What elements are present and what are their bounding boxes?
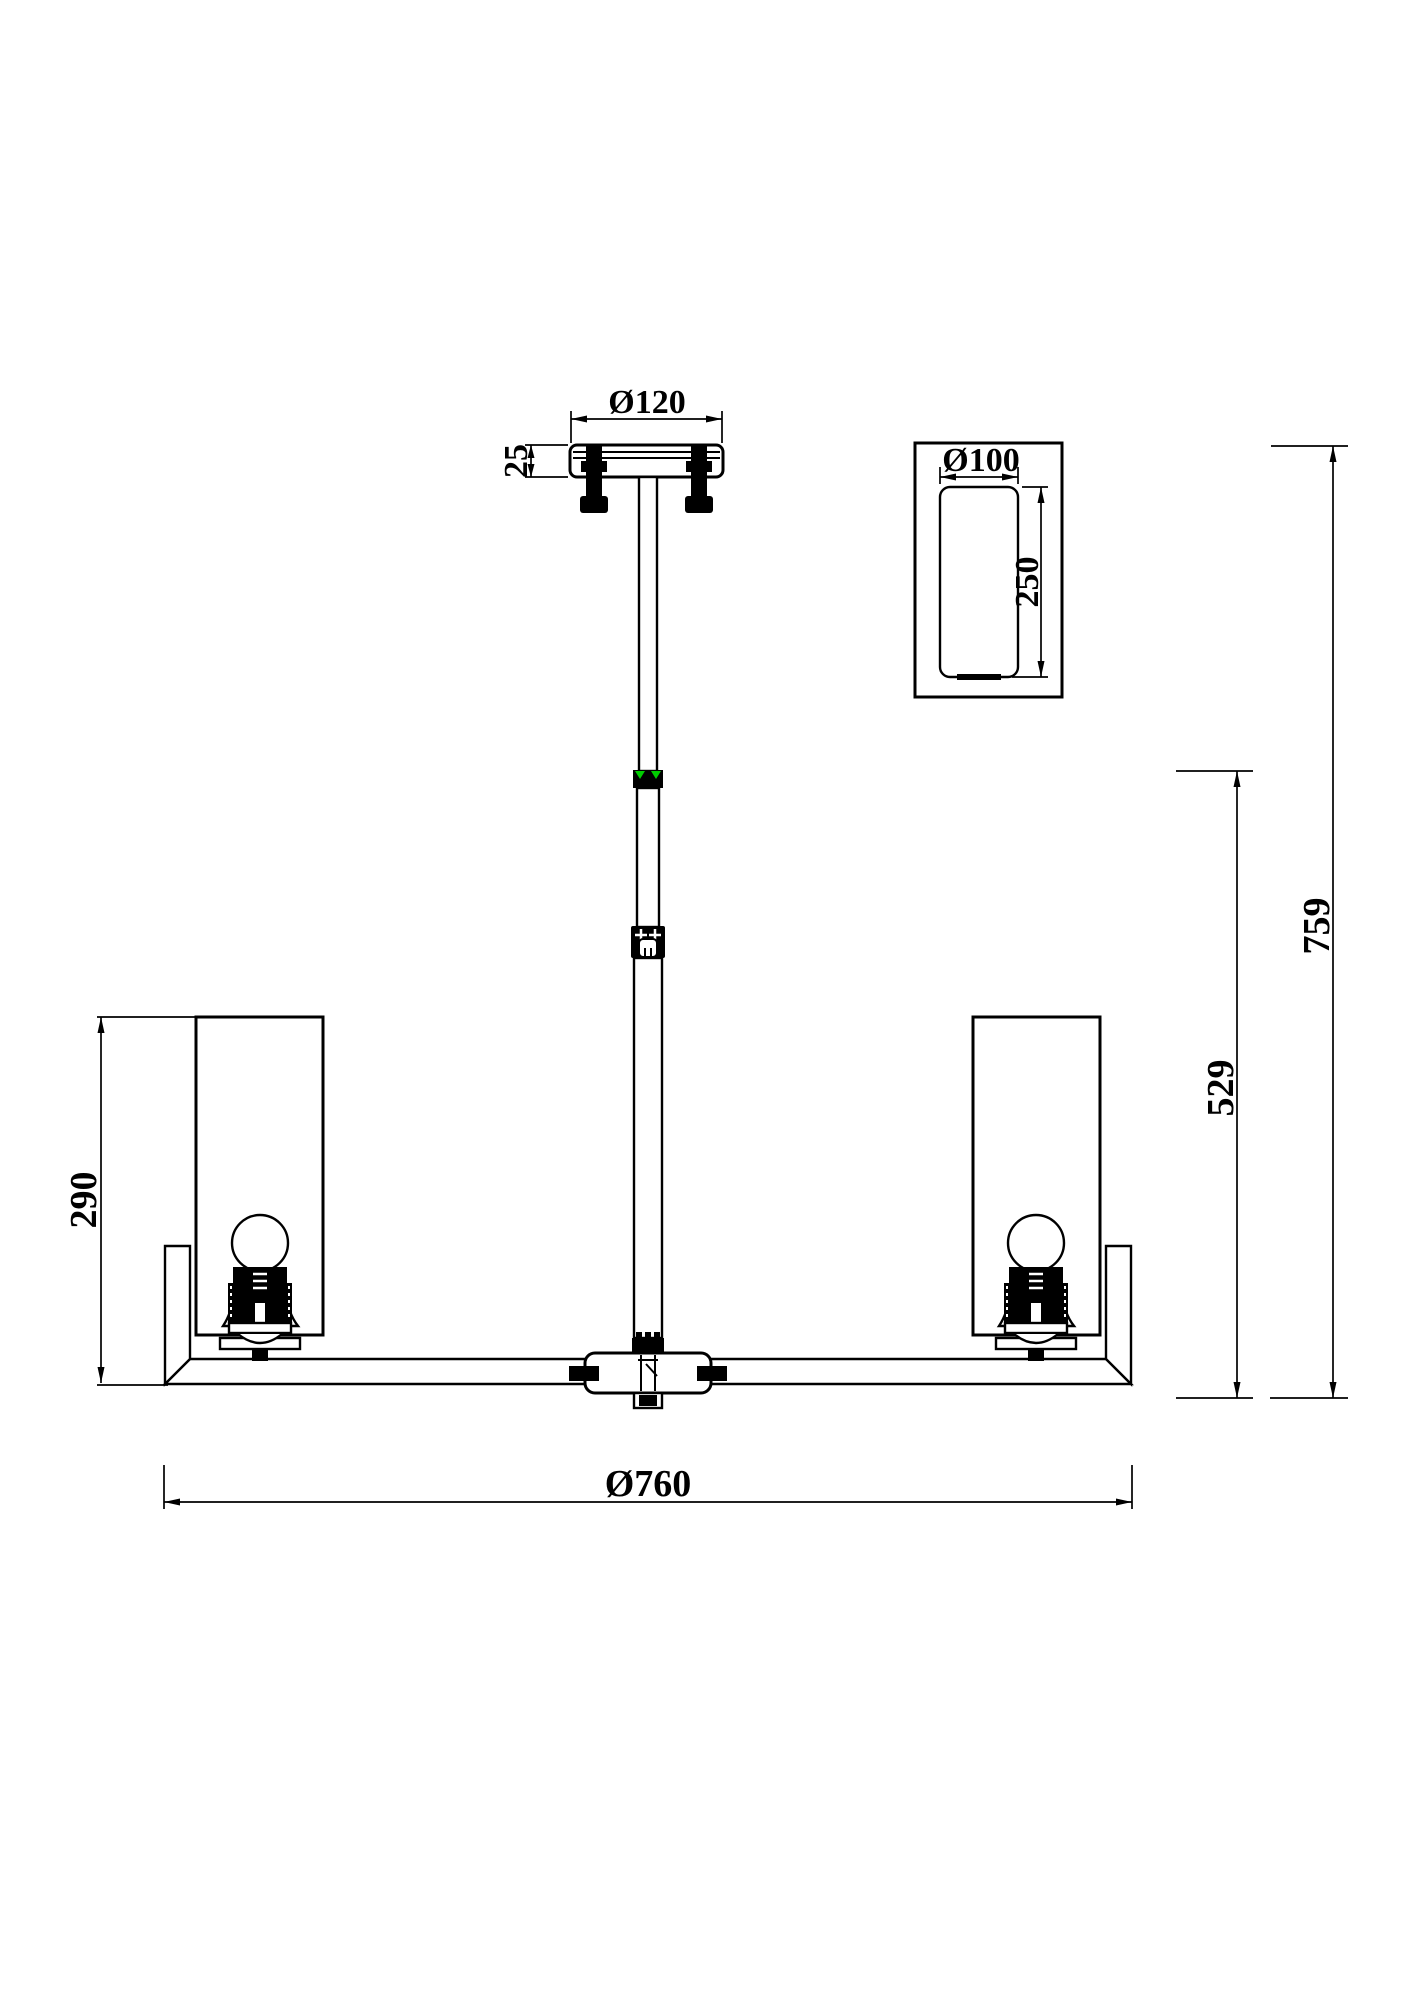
hub-screw-left <box>569 1366 599 1381</box>
holder-nipple-right <box>1028 1349 1044 1361</box>
holder-ring-left <box>229 1323 291 1333</box>
dim-label-fixture-diameter: Ø760 <box>605 1463 692 1505</box>
shade-detail-view: Ø100 250 <box>915 442 1062 697</box>
hub-under-block <box>639 1395 657 1406</box>
bulb-right <box>1008 1215 1064 1271</box>
dim-detail-diameter: Ø100 <box>940 442 1020 484</box>
dim-label-detail-height: 250 <box>1009 557 1046 608</box>
dim-total-height: 759 <box>1270 446 1348 1398</box>
dim-canopy-diameter: Ø120 <box>571 384 722 443</box>
dim-canopy-height: 25 <box>498 444 568 478</box>
dim-label-detail-diameter: Ø100 <box>942 442 1019 479</box>
down-rod-lower <box>634 958 662 1338</box>
dim-fixture-diameter: Ø760 <box>164 1463 1132 1509</box>
left-shade-assembly <box>196 1017 323 1361</box>
holder-ring-right <box>1005 1323 1067 1333</box>
down-rod-middle <box>637 788 659 927</box>
dim-label-body-height: 529 <box>1200 1060 1242 1117</box>
center-hub <box>569 1353 727 1408</box>
arm-end-bracket-left <box>165 1246 190 1384</box>
stem-bottom-nut <box>632 1332 664 1354</box>
holder-nipple-left <box>252 1349 268 1361</box>
hub-screw-right <box>697 1366 727 1381</box>
socket-slot-left <box>255 1303 265 1322</box>
dim-label-shade-height: 290 <box>63 1172 105 1229</box>
rod-joint-coupling <box>633 770 663 788</box>
stem-assembly <box>631 477 665 1354</box>
detail-shade-lip <box>957 674 1001 680</box>
socket-slot-right <box>1031 1303 1041 1322</box>
connector-socket <box>639 939 657 957</box>
detail-shade-cylinder <box>940 487 1018 677</box>
dim-label-canopy-height: 25 <box>498 444 535 478</box>
dim-label-total-height: 759 <box>1296 898 1338 955</box>
technical-drawing: Ø100 250 Ø120 25 290 529 <box>0 0 1413 2000</box>
rod-connector <box>631 926 665 958</box>
dim-label-canopy-diameter: Ø120 <box>608 384 685 421</box>
dim-body-height: 529 <box>1176 771 1253 1398</box>
down-rod-upper <box>639 477 657 771</box>
arm-end-bracket-right <box>1106 1246 1131 1384</box>
bulb-left <box>232 1215 288 1271</box>
right-shade-assembly <box>973 1017 1100 1361</box>
